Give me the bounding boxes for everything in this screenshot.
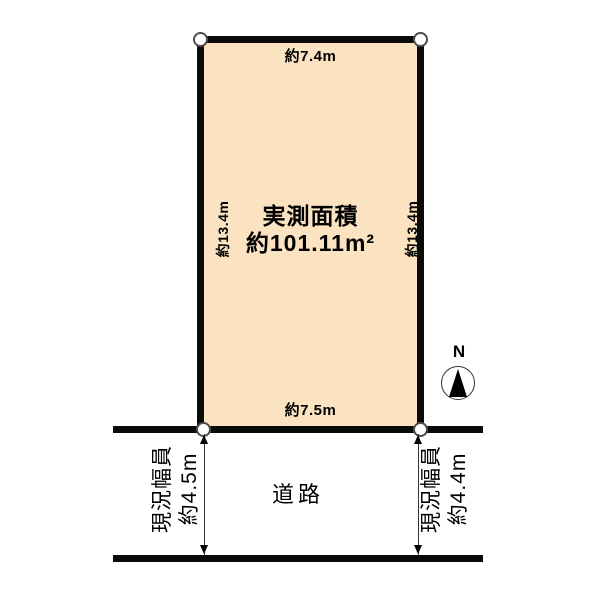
arrow-down-icon (414, 545, 422, 554)
plot-bottom-dimension-label: 約7.5m (197, 399, 424, 420)
road-width-label-right: 現況幅員 約4.4m (418, 445, 472, 533)
road-width-label-right-value: 約4.4m (445, 445, 472, 533)
plot-area-label: 実測面積 約101.11m² (197, 203, 424, 257)
road-width-label-left-value: 約4.5m (176, 445, 203, 533)
compass-north-label: N (442, 342, 476, 362)
road-edge-line-bottom (113, 555, 483, 562)
road-label: 道路 (192, 477, 404, 509)
road-width-label-left-title: 現況幅員 (149, 445, 176, 533)
plot-area-label-title: 実測面積 (197, 203, 424, 230)
land-survey-diagram: 約7.4m 約7.5m 約13.4m 約13.4m 実測面積 約101.11m²… (0, 0, 600, 600)
corner-marker-top-left (193, 32, 208, 47)
plot-top-dimension-label: 約7.4m (197, 45, 424, 66)
arrow-down-icon (200, 545, 208, 554)
corner-marker-top-right (413, 32, 428, 47)
plot-area-label-value: 約101.11m² (197, 230, 424, 257)
compass-needle-icon (449, 369, 467, 397)
road-width-label-left: 現況幅員 約4.5m (149, 445, 203, 533)
arrow-up-icon (414, 435, 422, 444)
arrow-up-icon (200, 435, 208, 444)
road-width-label-right-title: 現況幅員 (418, 445, 445, 533)
